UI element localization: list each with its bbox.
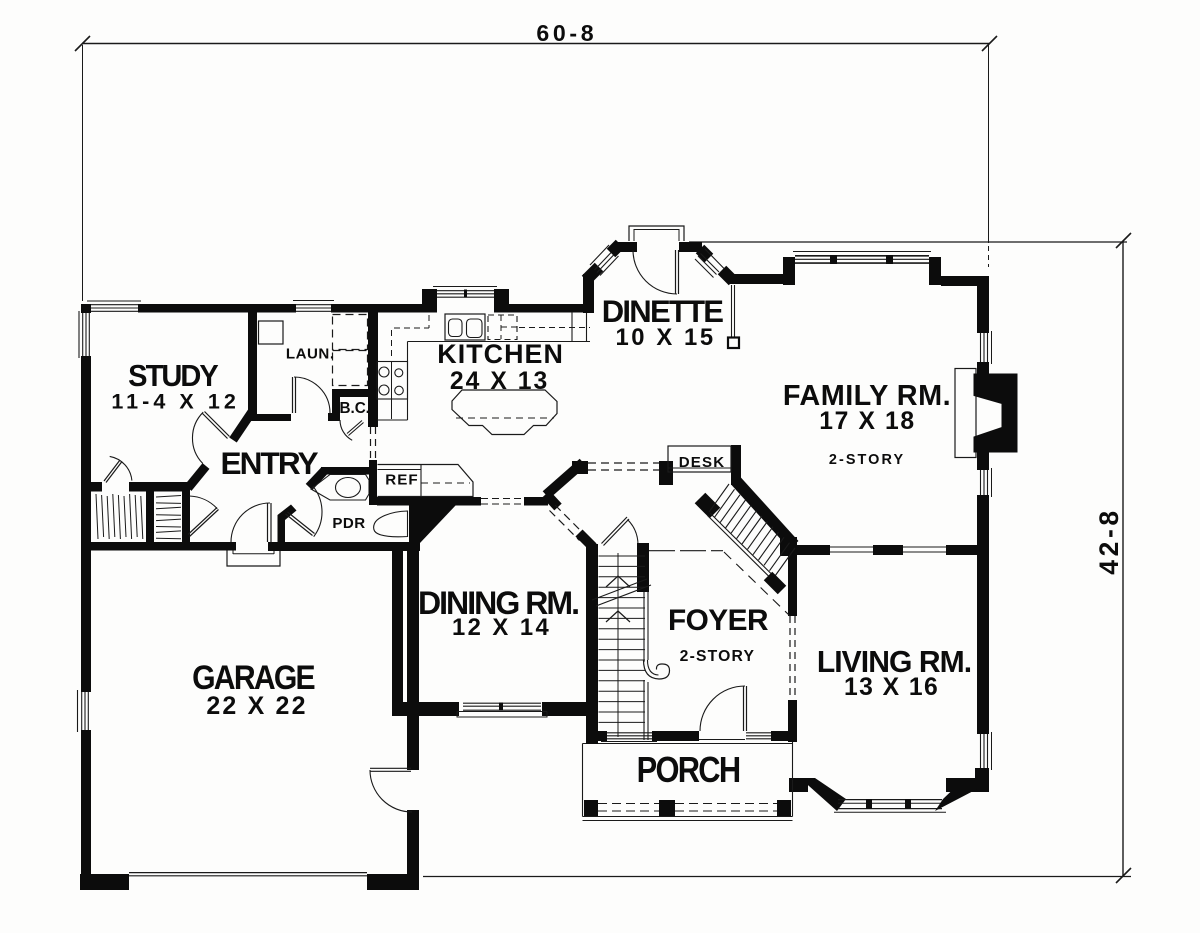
svg-text:60-8: 60-8: [536, 20, 597, 46]
svg-text:GARAGE: GARAGE: [192, 658, 315, 696]
svg-text:REF: REF: [385, 472, 418, 489]
svg-text:LAUN.: LAUN.: [286, 346, 335, 363]
svg-text:ENTRY: ENTRY: [220, 445, 318, 481]
svg-text:KITCHEN: KITCHEN: [437, 339, 564, 369]
svg-text:2-STORY: 2-STORY: [680, 648, 755, 665]
svg-text:PDR: PDR: [332, 515, 365, 532]
svg-text:17 X 18: 17 X 18: [819, 408, 915, 435]
svg-text:24 X 13: 24 X 13: [450, 368, 549, 395]
svg-text:PORCH: PORCH: [637, 751, 740, 791]
svg-text:42-8: 42-8: [1094, 507, 1124, 574]
svg-text:11-4 X 12: 11-4 X 12: [111, 390, 240, 414]
svg-text:STUDY: STUDY: [128, 359, 219, 393]
svg-text:12 X 14: 12 X 14: [452, 614, 551, 641]
svg-text:13 X 16: 13 X 16: [844, 674, 939, 701]
svg-text:B.C.: B.C.: [340, 400, 370, 417]
svg-text:10 X 15: 10 X 15: [615, 324, 715, 351]
svg-text:DESK: DESK: [679, 454, 726, 471]
svg-text:2-STORY: 2-STORY: [829, 452, 905, 468]
svg-text:FOYER: FOYER: [668, 604, 768, 637]
svg-text:22 X 22: 22 X 22: [206, 692, 307, 720]
